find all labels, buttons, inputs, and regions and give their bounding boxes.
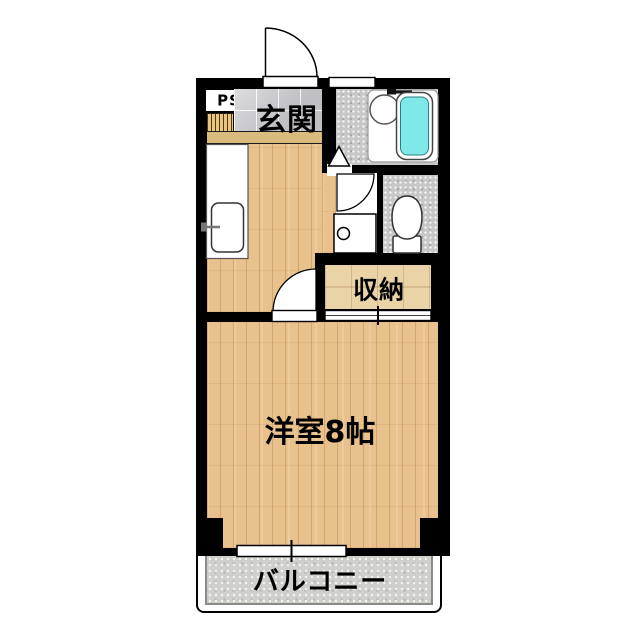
toilet-floor (383, 175, 438, 253)
main-room-label: 洋室8帖 (265, 418, 376, 448)
pillar-bottom-left (207, 518, 223, 548)
entrance-door-swing-arc (266, 28, 318, 77)
wall-segment (315, 253, 325, 312)
floorplan-canvas: PS (0, 0, 640, 640)
entrance-label: 玄関 (256, 106, 318, 136)
balcony-label: バルコニー (253, 569, 387, 595)
washroom-floor (336, 173, 377, 253)
kitchen-floor (207, 144, 322, 312)
storage-label: 収納 (353, 278, 405, 303)
bathroom-floor (336, 89, 438, 165)
pillar-bottom-right (420, 518, 438, 548)
corridor-floor (322, 173, 336, 253)
